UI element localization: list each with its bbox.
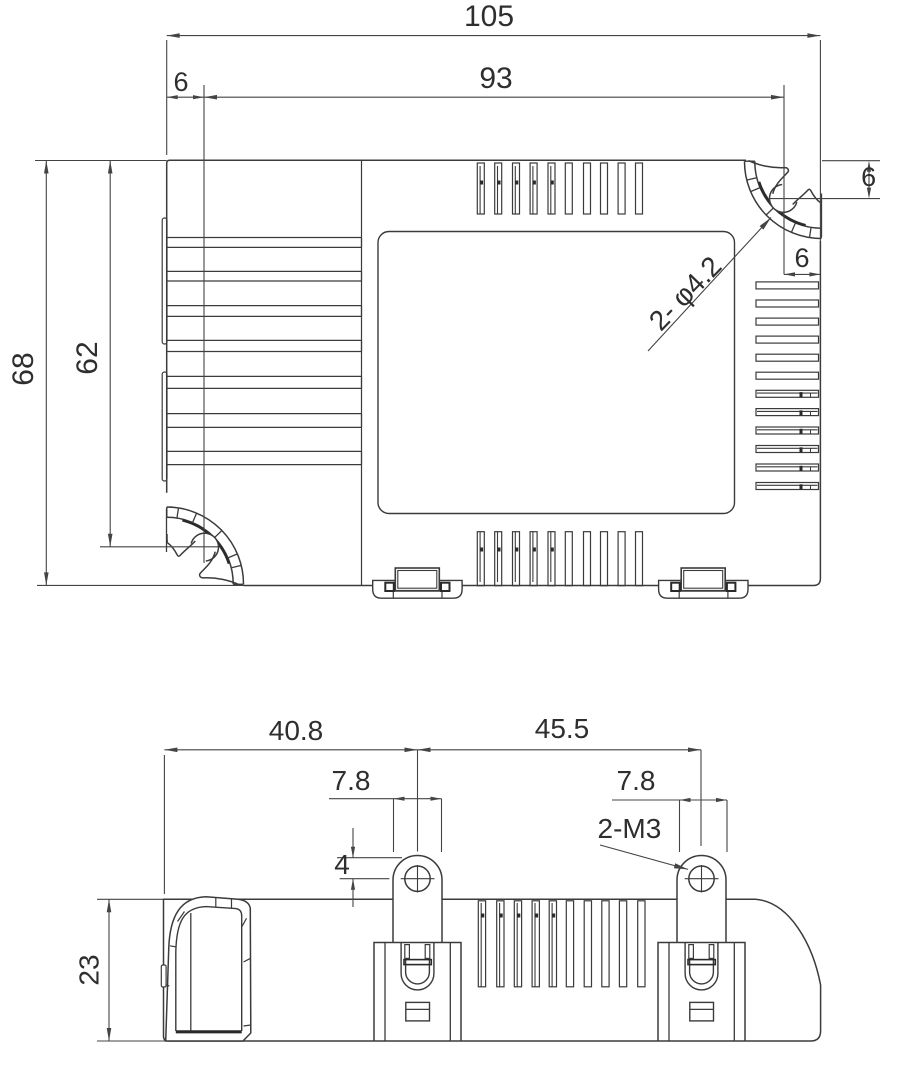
svg-text:7.8: 7.8	[617, 765, 656, 796]
svg-text:4: 4	[334, 849, 350, 880]
svg-text:2- φ4.2: 2- φ4.2	[643, 250, 728, 336]
svg-text:6: 6	[861, 162, 876, 192]
svg-text:40.8: 40.8	[269, 715, 324, 746]
svg-text:93: 93	[479, 62, 512, 95]
svg-text:68: 68	[7, 352, 40, 385]
svg-text:62: 62	[71, 341, 104, 374]
svg-text:23: 23	[74, 954, 105, 985]
svg-text:7.8: 7.8	[332, 765, 371, 796]
svg-text:105: 105	[464, 0, 514, 33]
svg-text:6: 6	[794, 243, 809, 273]
svg-text:45.5: 45.5	[535, 713, 590, 744]
svg-text:2-M3: 2-M3	[598, 813, 662, 844]
svg-text:6: 6	[173, 67, 188, 97]
